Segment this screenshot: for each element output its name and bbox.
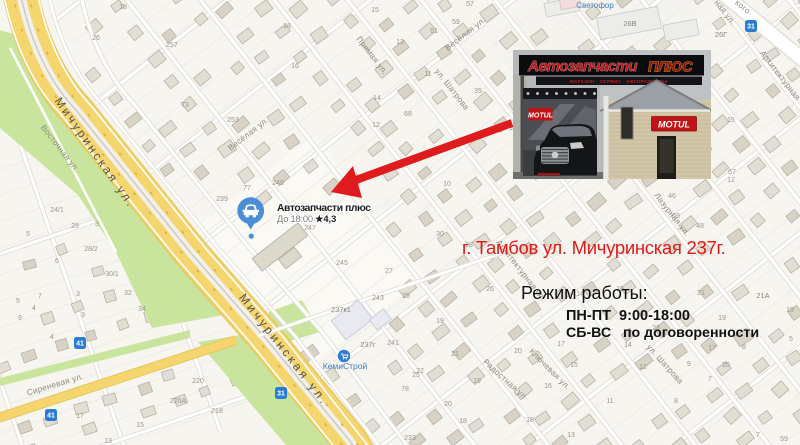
svg-text:16: 16 <box>291 63 299 70</box>
svg-text:Автозапчасти плюс: Автозапчасти плюс <box>277 203 371 214</box>
svg-text:35: 35 <box>474 88 482 95</box>
svg-text:249: 249 <box>272 180 284 187</box>
svg-text:22: 22 <box>416 368 424 375</box>
svg-text:27: 27 <box>385 268 393 275</box>
svg-text:18: 18 <box>283 23 291 30</box>
svg-text:MOTUL: MOTUL <box>528 113 553 120</box>
svg-text:17: 17 <box>708 345 716 352</box>
svg-text:245: 245 <box>336 260 348 267</box>
svg-text:24/1: 24/1 <box>50 207 64 214</box>
svg-text:7: 7 <box>708 376 712 383</box>
svg-text:26: 26 <box>486 286 494 293</box>
svg-text:32: 32 <box>124 290 132 297</box>
svg-text:10: 10 <box>443 181 451 188</box>
svg-text:Автозапчасти: Автозапчасти <box>527 58 637 75</box>
svg-text:20: 20 <box>722 362 730 369</box>
svg-text:31: 31 <box>747 24 755 31</box>
svg-text:19: 19 <box>436 318 444 325</box>
svg-text:ПН-ПТ 9:00-18:00: ПН-ПТ 9:00-18:00 <box>566 308 690 324</box>
svg-text:8: 8 <box>674 398 678 405</box>
svg-text:4: 4 <box>50 334 54 341</box>
svg-text:73: 73 <box>181 102 189 109</box>
svg-text:237к1: 237к1 <box>331 305 351 314</box>
svg-text:34: 34 <box>138 306 146 313</box>
svg-text:9: 9 <box>18 315 22 322</box>
svg-text:69: 69 <box>672 213 680 220</box>
svg-text:77: 77 <box>243 185 251 192</box>
svg-text:218: 218 <box>211 408 223 415</box>
svg-text:233: 233 <box>404 435 416 442</box>
svg-text:13: 13 <box>567 432 575 439</box>
svg-text:59: 59 <box>452 19 460 26</box>
svg-text:14: 14 <box>373 95 381 102</box>
svg-text:3: 3 <box>81 312 85 319</box>
svg-text:28: 28 <box>71 223 79 230</box>
svg-text:26: 26 <box>92 35 100 42</box>
svg-text:Светофор: Светофор <box>576 1 614 10</box>
svg-text:18: 18 <box>459 418 467 425</box>
svg-text:15: 15 <box>570 362 578 369</box>
svg-text:220: 220 <box>192 378 204 385</box>
svg-text:12: 12 <box>727 177 735 184</box>
svg-text:78: 78 <box>401 386 409 393</box>
svg-text:30: 30 <box>436 231 444 238</box>
svg-text:12: 12 <box>372 122 380 129</box>
svg-text:12: 12 <box>639 364 647 371</box>
svg-text:46: 46 <box>668 193 676 200</box>
svg-text:61: 61 <box>430 28 438 35</box>
svg-text:30/1: 30/1 <box>105 271 119 278</box>
svg-text:ПЛЮС: ПЛЮС <box>648 60 693 76</box>
svg-text:67: 67 <box>728 169 736 176</box>
svg-text:25: 25 <box>402 293 410 300</box>
svg-text:20: 20 <box>444 401 452 408</box>
svg-text:26В: 26В <box>623 19 636 28</box>
svg-text:31: 31 <box>277 391 285 398</box>
svg-text:7: 7 <box>38 293 42 300</box>
svg-text:Режим работы:: Режим работы: <box>521 283 648 303</box>
svg-text:15: 15 <box>727 117 735 124</box>
svg-text:18: 18 <box>119 4 127 11</box>
svg-text:15: 15 <box>136 422 144 429</box>
svg-text:До 18:00: До 18:00 <box>277 214 313 224</box>
svg-text:13: 13 <box>396 39 404 46</box>
svg-text:16: 16 <box>544 383 552 390</box>
svg-text:г. Тамбов ул. Мичуринская 237г: г. Тамбов ул. Мичуринская 237г. <box>462 237 725 258</box>
svg-text:3: 3 <box>95 221 99 228</box>
svg-text:21: 21 <box>697 290 705 297</box>
svg-text:28/2: 28/2 <box>84 246 98 253</box>
svg-text:57: 57 <box>466 1 474 8</box>
svg-text:3: 3 <box>76 291 80 298</box>
svg-text:239: 239 <box>216 196 228 203</box>
svg-text:17: 17 <box>557 341 565 348</box>
svg-text:247: 247 <box>304 225 316 232</box>
svg-text:6: 6 <box>55 258 59 265</box>
svg-text:41: 41 <box>76 341 84 348</box>
svg-text:237г: 237г <box>360 340 376 349</box>
svg-text:11: 11 <box>606 398 613 405</box>
svg-text:41: 41 <box>47 413 55 420</box>
svg-text:4: 4 <box>32 305 36 312</box>
svg-text:7: 7 <box>756 432 760 439</box>
svg-text:253: 253 <box>227 117 239 124</box>
svg-text:9: 9 <box>687 361 691 368</box>
svg-text:15: 15 <box>371 7 379 14</box>
svg-text:243: 243 <box>372 295 384 302</box>
svg-text:19: 19 <box>473 378 481 385</box>
svg-text:21: 21 <box>451 351 459 358</box>
svg-text:11: 11 <box>424 71 431 78</box>
svg-text:17: 17 <box>76 413 84 420</box>
svg-text:13: 13 <box>104 438 112 445</box>
svg-text:КемиСтрой: КемиСтрой <box>323 361 368 371</box>
svg-text:5: 5 <box>789 336 793 343</box>
svg-text:19: 19 <box>786 307 794 314</box>
svg-text:8: 8 <box>742 344 746 351</box>
svg-text:20: 20 <box>514 348 522 355</box>
svg-text:5: 5 <box>26 231 30 238</box>
svg-text:48: 48 <box>696 223 704 230</box>
svg-text:18: 18 <box>526 417 534 424</box>
svg-text:220А: 220А <box>170 398 187 405</box>
svg-text:14: 14 <box>624 342 632 349</box>
svg-text:21А: 21А <box>756 291 769 300</box>
svg-text:241: 241 <box>387 340 399 347</box>
svg-text:5: 5 <box>16 298 20 305</box>
svg-text:MOTUL: MOTUL <box>658 120 690 130</box>
svg-text:19: 19 <box>718 315 726 322</box>
svg-text:59: 59 <box>780 436 788 443</box>
svg-text:68: 68 <box>404 111 412 118</box>
svg-text:26Г: 26Г <box>715 30 727 39</box>
svg-text:257: 257 <box>166 42 178 49</box>
svg-text:СБ-ВС по договоренности: СБ-ВС по договоренности <box>566 325 759 341</box>
svg-text:★4,3: ★4,3 <box>314 214 336 224</box>
